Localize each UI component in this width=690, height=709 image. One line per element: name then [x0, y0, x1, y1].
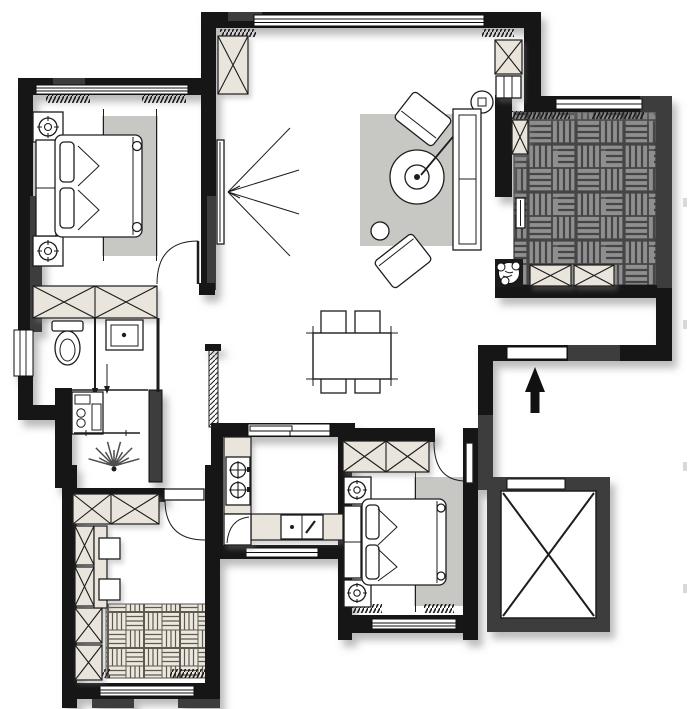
floor-plan-drawing — [0, 0, 690, 709]
curtain-hatch — [46, 95, 90, 103]
curtain-hatch — [170, 669, 206, 678]
window-bedroom2-bottom — [372, 619, 456, 629]
double-bed — [362, 499, 446, 585]
wall-entry-chunk — [568, 345, 620, 361]
sliding-screen — [209, 350, 218, 427]
window-master-top — [36, 85, 188, 94]
double-sink — [281, 515, 323, 539]
entry-door-opening — [507, 347, 567, 359]
master-wardrobe — [33, 286, 157, 318]
wall-study-stub-1 — [92, 699, 134, 708]
washing-machine — [72, 392, 103, 434]
balcony-parquet-decking — [514, 112, 656, 285]
kitchen-slider-panel-1 — [250, 426, 292, 431]
desk-chair — [99, 579, 120, 600]
wall-utility — [55, 388, 72, 488]
elevator-shaft — [501, 491, 596, 618]
pillow — [60, 188, 74, 228]
living-tall-cabinet — [218, 36, 248, 94]
window-study-bottom — [100, 686, 194, 696]
door-leaf — [466, 443, 473, 483]
topright-cabinet — [495, 40, 522, 98]
vanity-sink — [106, 320, 143, 350]
floor-plan-canvas — [0, 0, 690, 709]
wall-balcony-right — [656, 96, 672, 290]
wall-master-door-stub — [199, 283, 215, 295]
wall-balcony-left — [495, 95, 512, 197]
double-bed — [55, 135, 142, 237]
study-parquet-platform — [106, 604, 212, 678]
elevator-door-opening — [507, 479, 565, 489]
wall-living-west-lining — [207, 196, 216, 290]
wall-study-east — [205, 465, 220, 697]
curtain-hatch — [482, 29, 514, 37]
bedroom2-wardrobe — [343, 441, 429, 472]
elevator-wall-bottom — [487, 618, 610, 632]
elevator-wall-left — [487, 477, 501, 632]
sofa — [453, 109, 481, 250]
door-leaf — [164, 489, 204, 500]
kitchen-corner-cabinet — [224, 514, 251, 545]
kitchen-slider-panel-2 — [290, 431, 330, 436]
elevator-wall-right — [596, 477, 610, 632]
desk-chair — [99, 538, 120, 559]
two-burner-cooktop — [226, 457, 250, 505]
wall-topright-v — [524, 12, 541, 108]
pillow — [366, 505, 379, 539]
dining-table — [306, 326, 398, 386]
wall-entry-west — [478, 345, 493, 417]
curtain-hatch — [142, 95, 186, 103]
window-bathroom-left — [14, 330, 33, 376]
balcony-small-cabinet — [512, 120, 528, 154]
pillow — [366, 545, 379, 579]
curtain-hatch — [424, 604, 454, 613]
wall-study-stub-2 — [178, 699, 220, 708]
curtain-hatch — [512, 111, 570, 119]
dining-chair — [321, 311, 346, 336]
potted-plant — [495, 259, 523, 287]
sliding-rail — [516, 198, 525, 228]
wall-mounted-tv — [217, 140, 224, 244]
dining-chair — [355, 311, 380, 336]
round-side-table — [371, 222, 389, 240]
window-living-top — [254, 15, 484, 26]
wall-pocket — [149, 390, 162, 482]
pillow — [60, 142, 74, 182]
study-wardrobe-row — [73, 494, 159, 524]
curtain-hatch — [592, 111, 644, 119]
